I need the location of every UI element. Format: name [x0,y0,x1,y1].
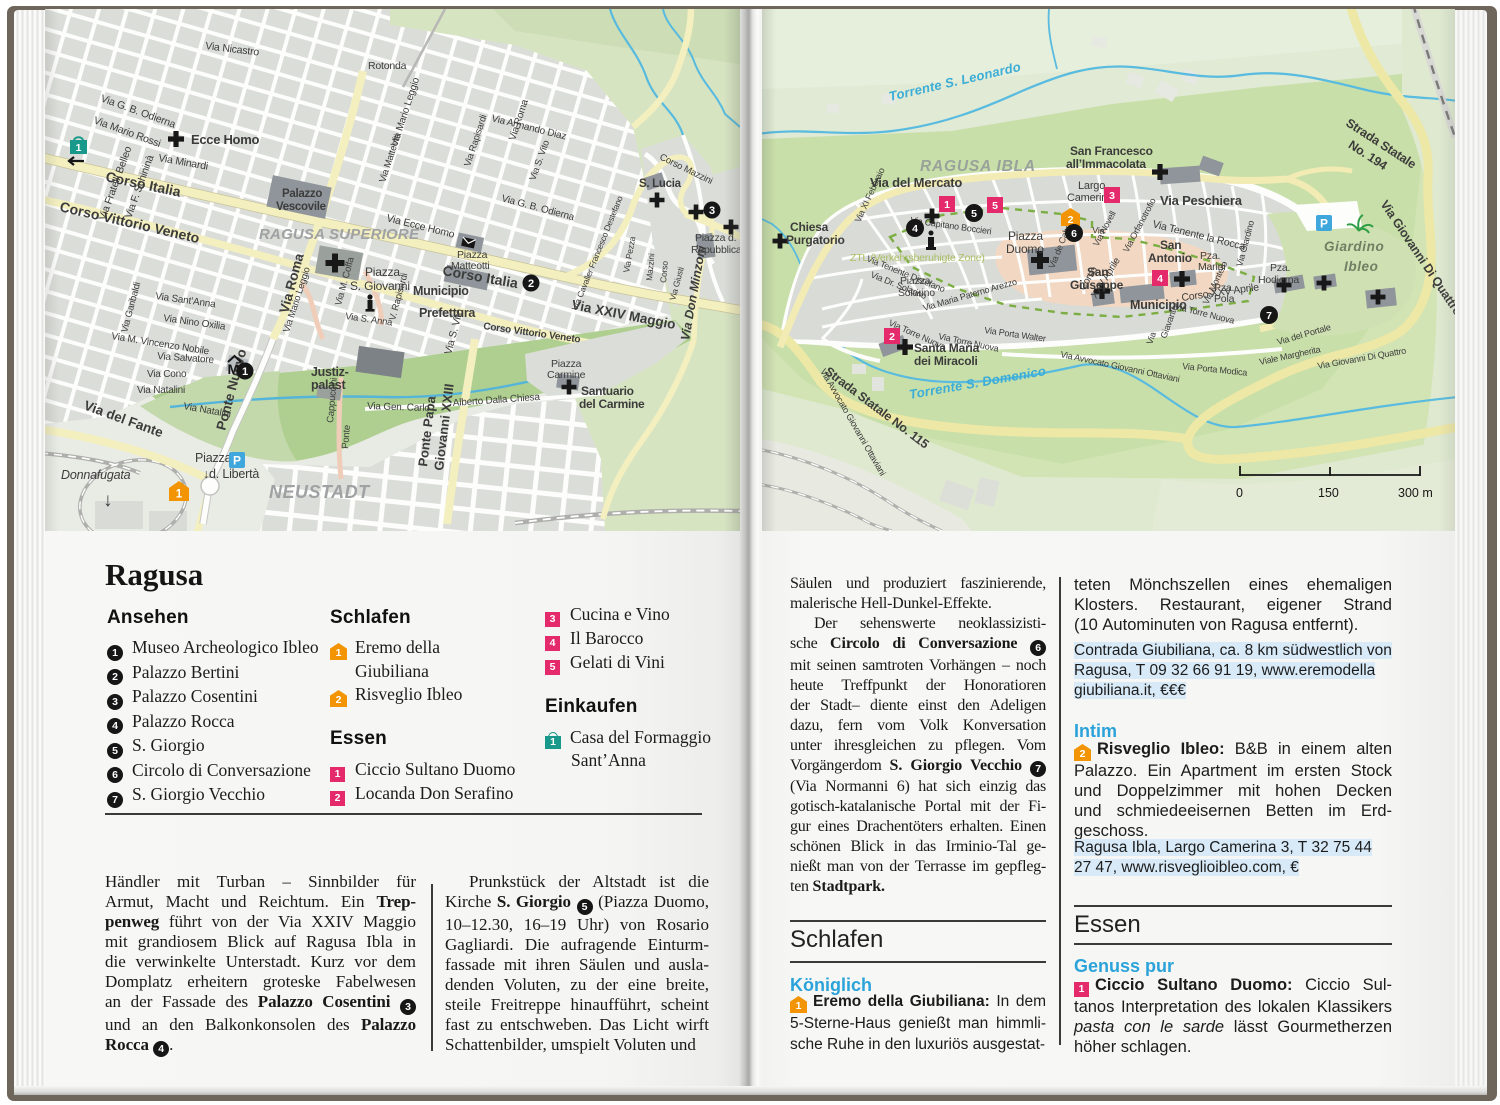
svg-text:Municipio: Municipio [413,284,469,298]
svg-text:7: 7 [1266,310,1272,322]
svg-text:Chiesa: Chiesa [790,220,829,234]
svg-text:Prefettura: Prefettura [419,306,476,320]
svg-text:Largo: Largo [1078,180,1105,192]
svg-text:Corso: Corso [658,260,670,283]
svg-text:300 m: 300 m [1398,486,1433,500]
svg-text:Giardino: Giardino [1324,239,1384,254]
svg-text:Duomo: Duomo [1006,242,1044,256]
svg-text:Solarino: Solarino [898,287,935,299]
svg-text:S. Lucia: S. Lucia [639,178,682,190]
svg-text:↓d. Libertà: ↓d. Libertà [203,467,259,481]
svg-text:Matteotti: Matteotti [451,260,489,272]
svg-text:3: 3 [709,205,715,217]
svg-text:Rotonda: Rotonda [368,60,407,72]
svg-text:2: 2 [889,331,895,343]
svg-text:San: San [1087,265,1108,279]
svg-text:1: 1 [76,142,82,154]
svg-text:Via del Mercato: Via del Mercato [870,175,962,190]
svg-text:Via: Via [1092,225,1105,236]
svg-text:Purgatorio: Purgatorio [786,233,845,247]
svg-text:Justiz-: Justiz- [311,365,349,379]
svg-text:4: 4 [1157,273,1163,285]
svg-text:0: 0 [1236,486,1243,500]
svg-text:Antonio: Antonio [1148,251,1192,265]
svg-text:2: 2 [528,278,534,290]
svg-text:1: 1 [176,489,183,501]
svg-text:P: P [233,454,241,468]
svg-text:dei Miracoli: dei Miracoli [914,354,978,368]
svg-text:Santa Maria: Santa Maria [914,341,980,355]
svg-text:San Francesco: San Francesco [1070,144,1153,158]
svg-text:Piazza: Piazza [365,265,400,279]
svg-text:3: 3 [1109,190,1115,202]
svg-text:ZTL (Verkehrsberuhigte Zone): ZTL (Verkehrsberuhigte Zone) [850,252,985,264]
svg-text:Santuario: Santuario [581,384,634,398]
svg-text:150: 150 [1318,486,1339,500]
svg-text:Via Peschiera: Via Peschiera [1160,193,1243,208]
svg-text:4: 4 [912,223,918,235]
svg-text:6: 6 [1071,228,1077,240]
svg-text:Giuseppe: Giuseppe [1070,278,1124,292]
svg-text:del Carmine: del Carmine [579,397,645,411]
svg-text:5: 5 [971,208,977,220]
svg-text:1: 1 [944,199,950,211]
svg-text:↓: ↓ [103,490,112,511]
svg-text:Via Cono: Via Cono [147,369,187,380]
svg-text:5: 5 [992,200,998,212]
svg-text:Ibleo: Ibleo [1344,259,1379,274]
svg-text:Hodierna: Hodierna [1258,274,1299,286]
svg-text:Piazza: Piazza [1008,229,1043,243]
svg-text:Piazza: Piazza [900,275,931,287]
svg-text:San: San [1160,238,1181,252]
svg-text:RAGUSA IBLA: RAGUSA IBLA [920,158,1036,175]
svg-text:Carmine: Carmine [547,369,586,381]
svg-text:NEUSTADT: NEUSTADT [269,482,371,502]
svg-text:Ponte: Ponte [340,425,353,450]
svg-text:1: 1 [242,366,248,378]
svg-text:Piazza: Piazza [195,451,232,465]
svg-text:Donnafugata: Donnafugata [61,468,131,482]
svg-text:Pza.: Pza. [1270,262,1290,274]
svg-text:Via Natalini: Via Natalini [137,385,185,396]
svg-text:all’Immacolata: all’Immacolata [1066,157,1146,171]
svg-text:P: P [1320,217,1328,231]
svg-text:Vescovile: Vescovile [276,201,326,213]
svg-text:Palazzo: Palazzo [282,188,322,200]
svg-text:RAGUSA SUPERIORE: RAGUSA SUPERIORE [259,226,420,243]
svg-text:Ecce Homo: Ecce Homo [191,132,259,147]
